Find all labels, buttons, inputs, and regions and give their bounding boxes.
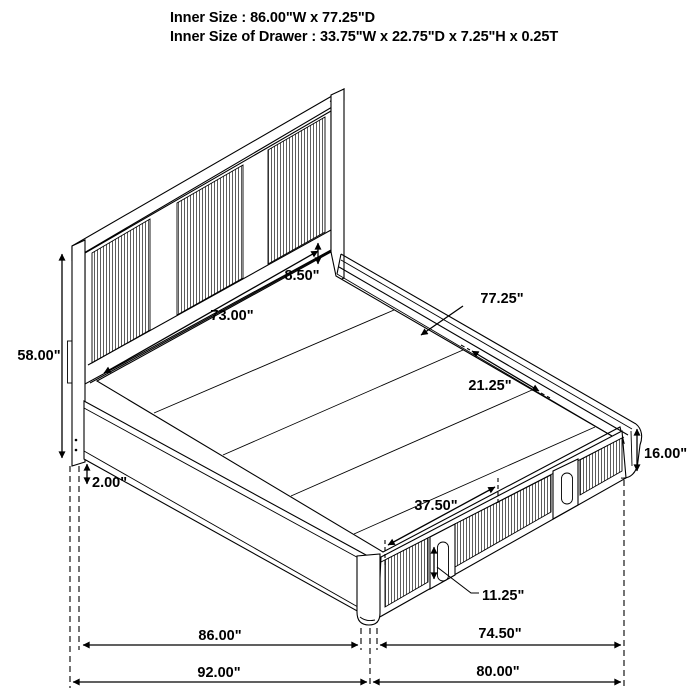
- headboard-left-post: [72, 240, 85, 466]
- dim-label-inner-width: 86.00": [198, 628, 241, 644]
- dim-label-rail-height: 16.00": [644, 446, 687, 462]
- dim-label-foot-overall: 80.00": [476, 664, 519, 680]
- dim-label-base-gap: 2.00": [92, 475, 127, 491]
- dim-label-overall-width: 92.00": [197, 665, 240, 681]
- dim-label-depth: 77.25": [480, 291, 523, 307]
- left-post-bracket: [68, 341, 73, 383]
- dim-label-headboard-width: 73.00": [210, 308, 253, 324]
- dim-label-handle-height: 11.25": [482, 588, 524, 604]
- right-corner-seam: [631, 431, 632, 466]
- front-corner-foot: [357, 554, 380, 625]
- post-pin-hole: [75, 439, 78, 442]
- dim-label-headboard-rail: 8.50": [284, 268, 319, 284]
- post-pin-hole: [75, 449, 78, 452]
- diagram-page: Inner Size : 86.00"W x 77.25"DInner Size…: [0, 0, 700, 700]
- dim-label-drawer-span: 37.50": [414, 498, 457, 514]
- dim-label-drawer-depth: 21.25": [468, 378, 511, 394]
- dim-label-headboard-height: 58.00": [17, 348, 60, 364]
- bed-dimension-drawing: 73.00" 8.50" 58.00" 2.00" 77.25" 21.25" …: [0, 0, 700, 700]
- dim-label-foot-inner: 74.50": [478, 626, 521, 642]
